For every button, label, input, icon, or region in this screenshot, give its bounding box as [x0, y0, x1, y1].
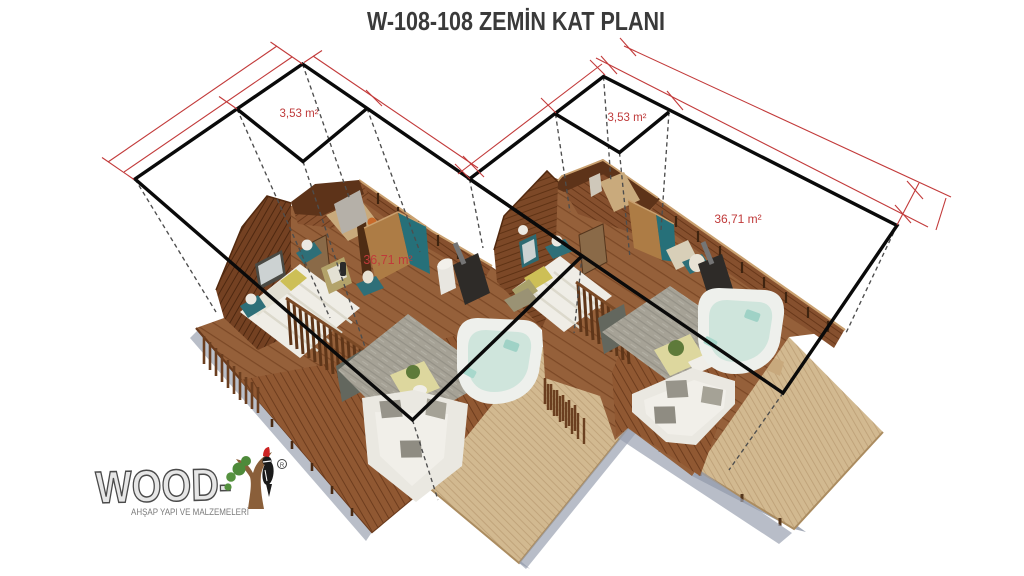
svg-text:W-108-108 ZEMİN KAT PLANI: W-108-108 ZEMİN KAT PLANI [367, 6, 665, 36]
svg-text:36,71 m²: 36,71 m² [714, 212, 761, 226]
svg-text:WOOD-: WOOD- [95, 458, 232, 513]
svg-text:AHŞAP YAPI VE MALZEMELERİ: AHŞAP YAPI VE MALZEMELERİ [131, 507, 249, 517]
svg-text:3,53 m²: 3,53 m² [280, 108, 319, 120]
svg-text:3,53 m²: 3,53 m² [608, 112, 647, 124]
svg-text:36,71 m²: 36,71 m² [363, 253, 412, 267]
svg-text:R: R [280, 463, 285, 469]
